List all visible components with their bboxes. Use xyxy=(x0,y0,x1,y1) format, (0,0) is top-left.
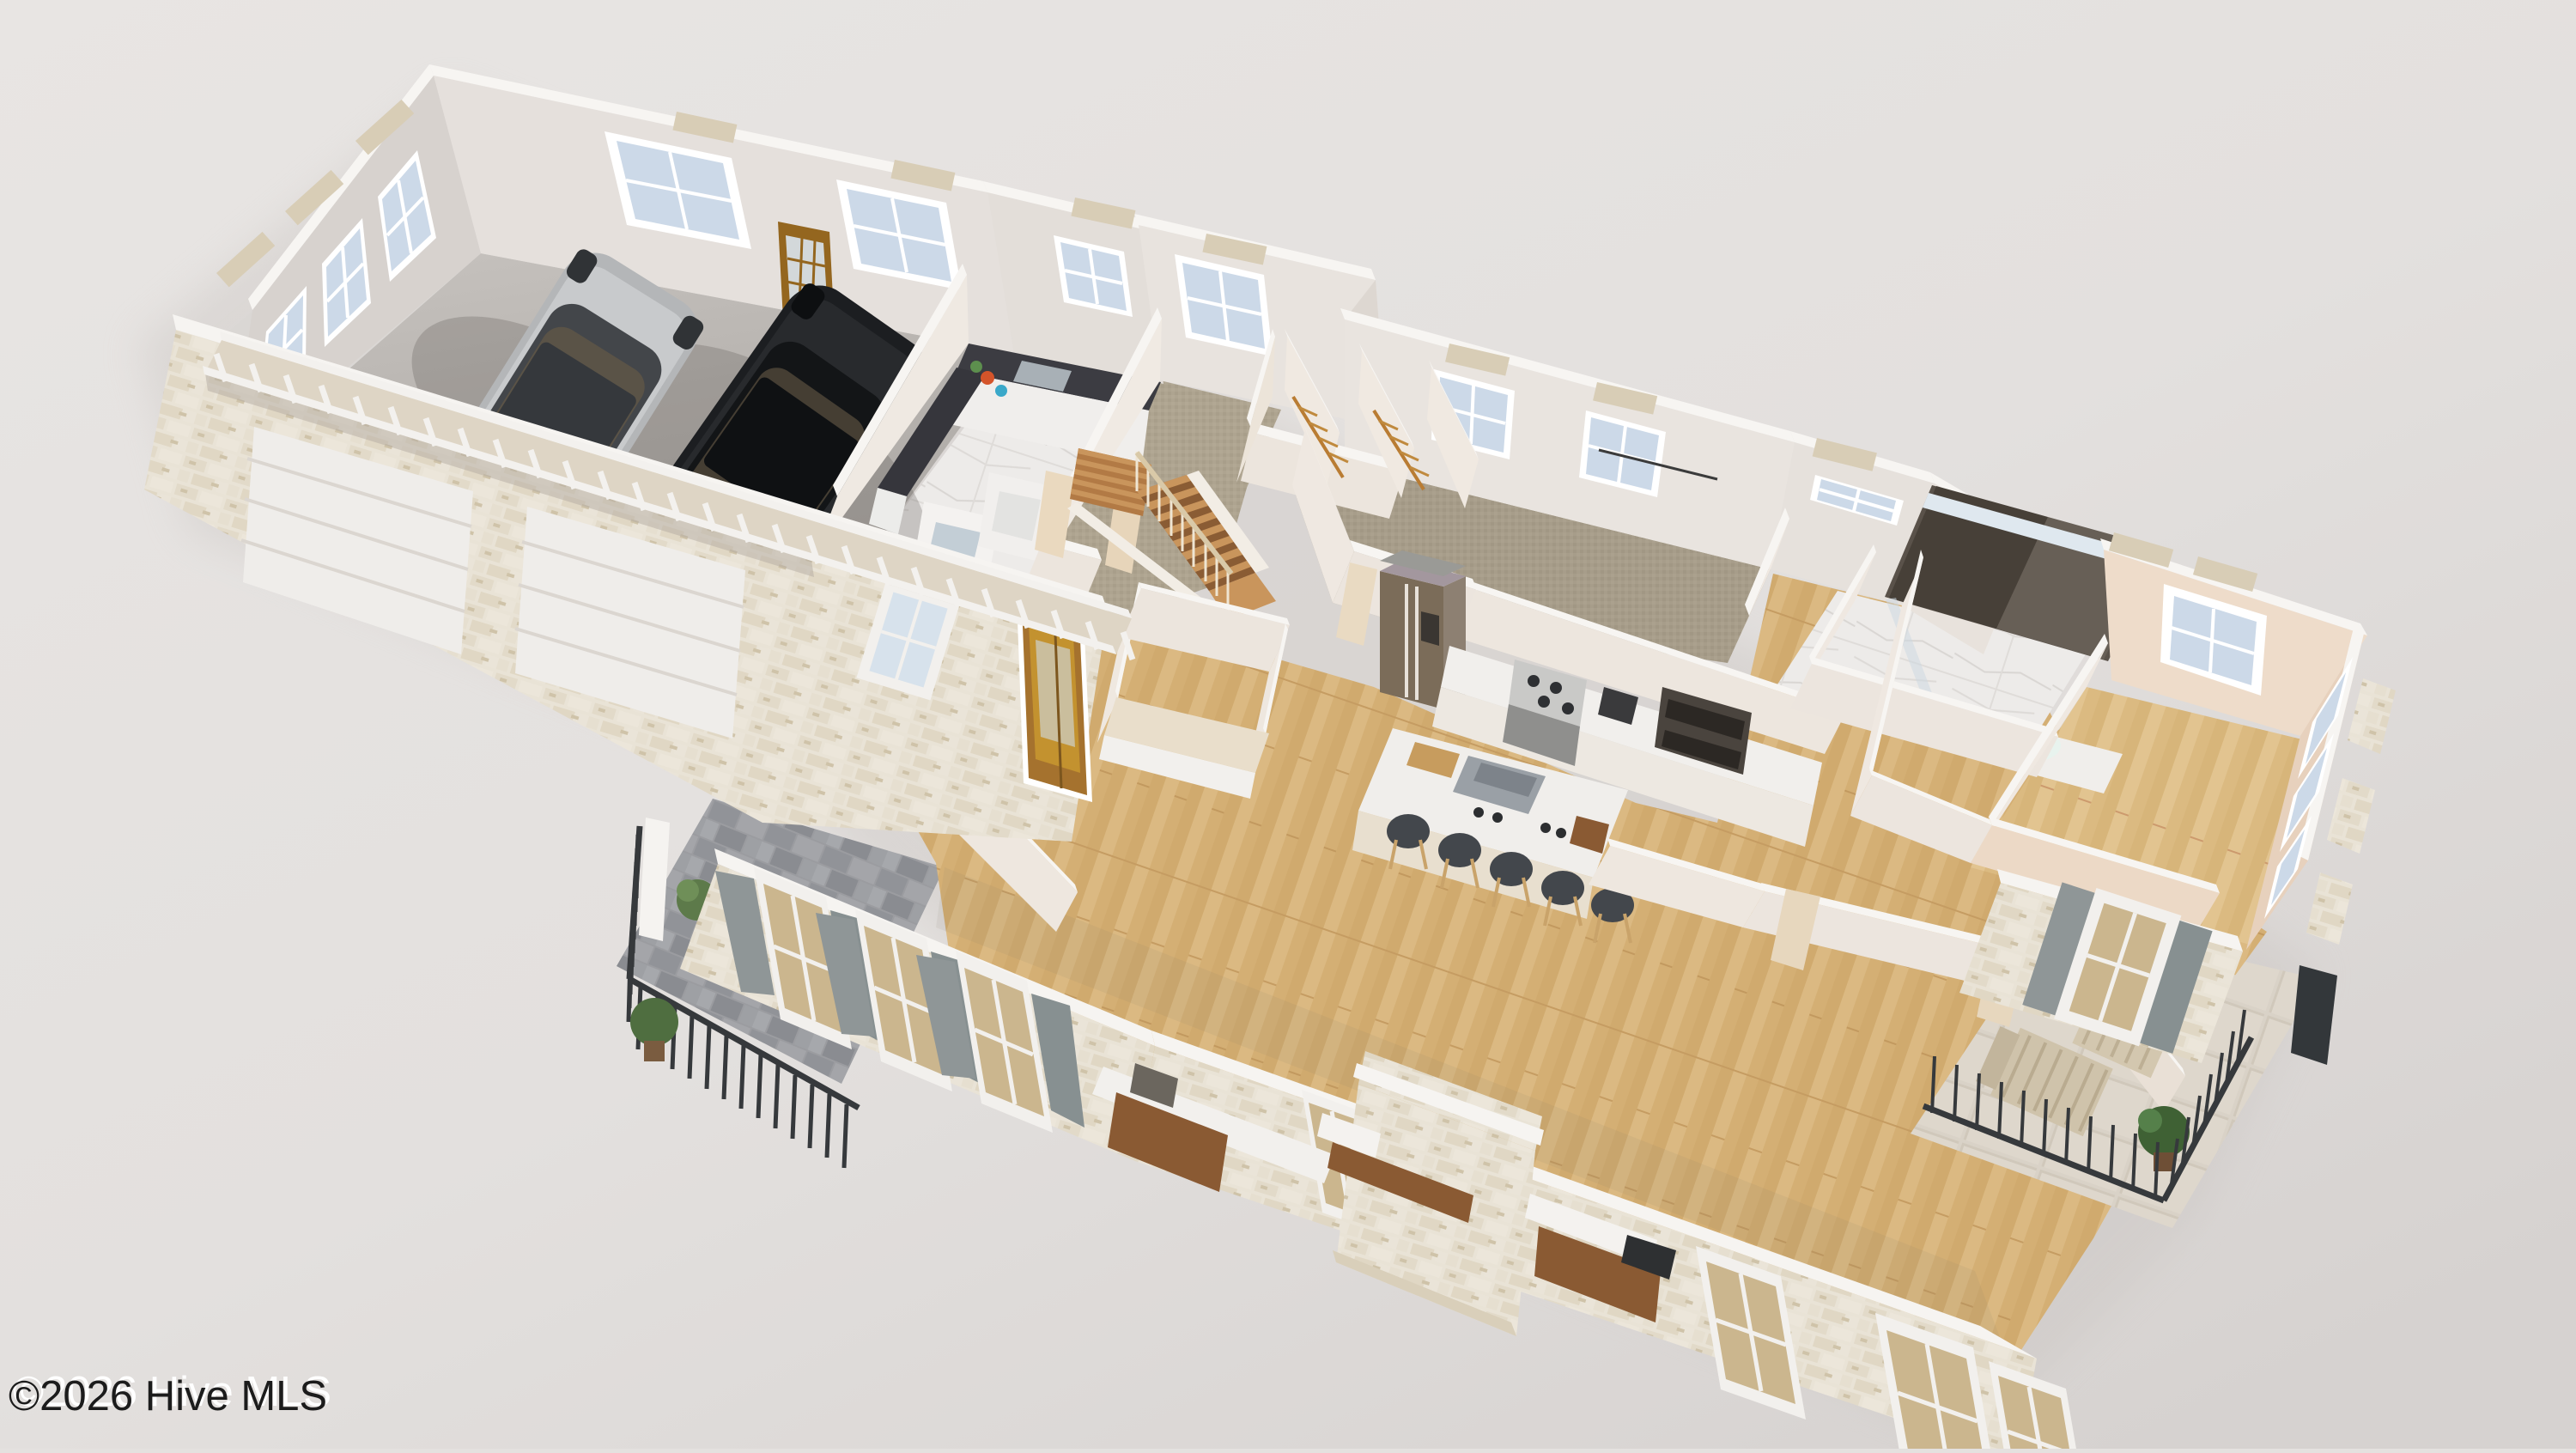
svg-text:©2026 Hive MLS: ©2026 Hive MLS xyxy=(9,1373,327,1420)
